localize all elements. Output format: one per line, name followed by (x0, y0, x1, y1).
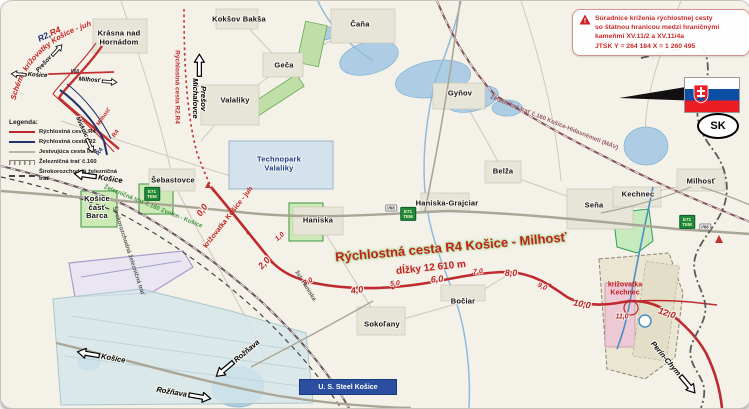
direction-arrow-pre-ov: Prešov (35, 42, 66, 75)
info-line-1: Súradnice kríženia rýchlostnej cesty (595, 14, 719, 23)
km-marker-8-0: 8,0 (505, 268, 518, 278)
town-label-se-a: Seňa (585, 202, 604, 211)
town-label-kok-ov-bak-a: Kokšov Bakša (212, 16, 266, 25)
info-line-2: so štátnou hranicou medzi hraničnými (595, 23, 719, 32)
town-label-gy-ov: Gyňov (448, 90, 472, 99)
arrow-label: Perín-Chym (649, 340, 682, 377)
legend-item-r-chlostn-cesta-r4: Rýchlostná cesta R4 (9, 129, 119, 136)
arrow-icon (194, 53, 205, 77)
arrow-icon (187, 389, 213, 404)
km-marker-9-0: 9,0 (536, 282, 548, 292)
e-road-sign-1: E71 TEM (400, 207, 416, 221)
warning-icon: ! (579, 14, 591, 25)
road-shield-1: I/68 (699, 224, 711, 231)
arrow-icon (212, 357, 237, 381)
railway-label-elezni-n-tra-160-ko-ice-hidasn-meti-m-v: Železničná trať č.160 Košice-Hidasnémeti… (489, 94, 619, 151)
town-label-milhos: Milhosť (687, 178, 716, 187)
legend-sample-red (9, 131, 35, 133)
town-label-bo-iar: Bočiar (451, 298, 476, 307)
info-line-4: JTSK Y = 264 184 X = 1 260 495 (595, 42, 719, 51)
ussteel-label-box: U. S. Steel Košice (299, 379, 397, 395)
ussteel-label: U. S. Steel Košice (318, 384, 377, 391)
schema-i68-label: I/68 (71, 69, 79, 75)
arrow-icon (49, 42, 66, 59)
town-label-kr-sna-nad-horn-dom: Krásna nad Hornádom (98, 29, 141, 46)
arrow-icon (10, 70, 27, 79)
town-label-valaliky: Valaliky (220, 97, 249, 106)
legend-label: Železničná trať č.160 (39, 159, 97, 166)
railway-label-irokorozchodn-elezni-n-tra: Širokorozchodná železničná trať (111, 206, 145, 296)
junction-kosice-juh-label: križovatka Košice - juh (202, 186, 255, 251)
e-road-sign-0: E71 TEM (144, 187, 160, 201)
arrow-label: Rožňava (232, 338, 261, 364)
town-label-soko-any: Sokoľany (364, 321, 400, 330)
km-marker-12-0: 12,0 (657, 306, 677, 321)
coordinates-info-box: ! Súradnice kríženia rýchlostnej cesty s… (572, 9, 749, 56)
km-marker-2-0: 2,0 (256, 255, 272, 271)
legend-item-r-chlostn-cesta-r2: Rýchlostná cesta R2 (9, 139, 119, 146)
arrow-label: Rožňava (156, 385, 188, 398)
town-label-ebastovce: Šebastovce (151, 177, 195, 186)
town-label-kechnec: Kechnec (622, 191, 655, 200)
town-label-ge-a: Geča (274, 62, 293, 71)
info-box-text: Súradnice kríženia rýchlostnej cesty so … (595, 14, 719, 51)
legend-item-elezni-n-tra-160: Železničná trať č.160 (9, 159, 119, 166)
km-marker-11-0: 11,0 (615, 314, 628, 321)
km-marker-5-0: 5,0 (390, 280, 400, 288)
km-marker-1-0: 1,0 (274, 231, 286, 243)
junction-kechnec-label: križovatka Kechnec (608, 282, 642, 299)
info-line-3: kameňmi XV.11/2 a XV.11/4a (595, 32, 719, 41)
sk-code: SK (710, 120, 725, 132)
arrow-label: Košice (98, 173, 123, 184)
arrow-icon (76, 346, 102, 361)
km-marker-7-0: 7,0 (473, 268, 483, 276)
arrow-label: Košice (27, 72, 47, 80)
legend-sample-navy (9, 141, 35, 143)
road-shield-0: I/68 (385, 205, 397, 212)
labels-layer: Legenda: Rýchlostná cesta R4Rýchlostná c… (1, 1, 749, 408)
town-label-bel-a: Belža (493, 168, 514, 177)
slovakia-flag (684, 77, 740, 113)
slovakia-coat-of-arms (693, 84, 709, 104)
town-label-haniska: Haniska (303, 217, 333, 226)
direction-arrow-pre-ov-michalovce: Prešov Michalovce (191, 53, 207, 118)
town-label-a-a: Čaňa (350, 21, 369, 30)
railway-label-st-haniska: žst. Haniska (293, 270, 316, 303)
km-marker-6-0: 6,0 (430, 273, 443, 284)
direction-arrow-ko-ice: Košice (76, 346, 127, 365)
arrow-label: Košice (101, 352, 127, 364)
arrow-icon (101, 77, 118, 86)
arrow-icon (676, 372, 700, 397)
planned-r2r4-label: Rýchlostná cesta R2.R4 (174, 50, 181, 124)
legend-sample-gray (9, 151, 35, 153)
legend-sample-dash (9, 175, 35, 177)
map-canvas: Schéma križovatky Košice - juh Legenda: … (0, 0, 749, 409)
direction-arrow-per-n-chym: Perín-Chym (648, 339, 700, 397)
direction-arrow-ro-ava: Rožňava (156, 384, 213, 405)
km-marker-0-0: 0,0 (194, 202, 209, 218)
e-road-sign-2: E71 TEM (679, 215, 695, 229)
km-marker-4-0: 4,0 (350, 284, 364, 296)
direction-arrow-milhos: Milhosť (78, 76, 117, 87)
direction-arrow-ro-ava: Rožňava (212, 337, 262, 381)
arrow-label: Milhosť (78, 76, 100, 84)
arrow-label: Prešov Michalovce (191, 78, 207, 118)
town-label-ko-ice-as-barca: Košice časť Barca (84, 195, 110, 221)
legend-sample-rail (9, 160, 35, 165)
svg-text:!: ! (584, 18, 586, 25)
town-label-haniska-grajciar: Haniska-Grajciar (416, 200, 479, 209)
sk-country-oval: SK (697, 113, 739, 139)
arrow-label: Prešov (35, 55, 53, 74)
km-marker-10-0: 10,0 (572, 298, 591, 311)
town-label-technopark-valaliky: Technopark Valaliky (257, 155, 301, 172)
